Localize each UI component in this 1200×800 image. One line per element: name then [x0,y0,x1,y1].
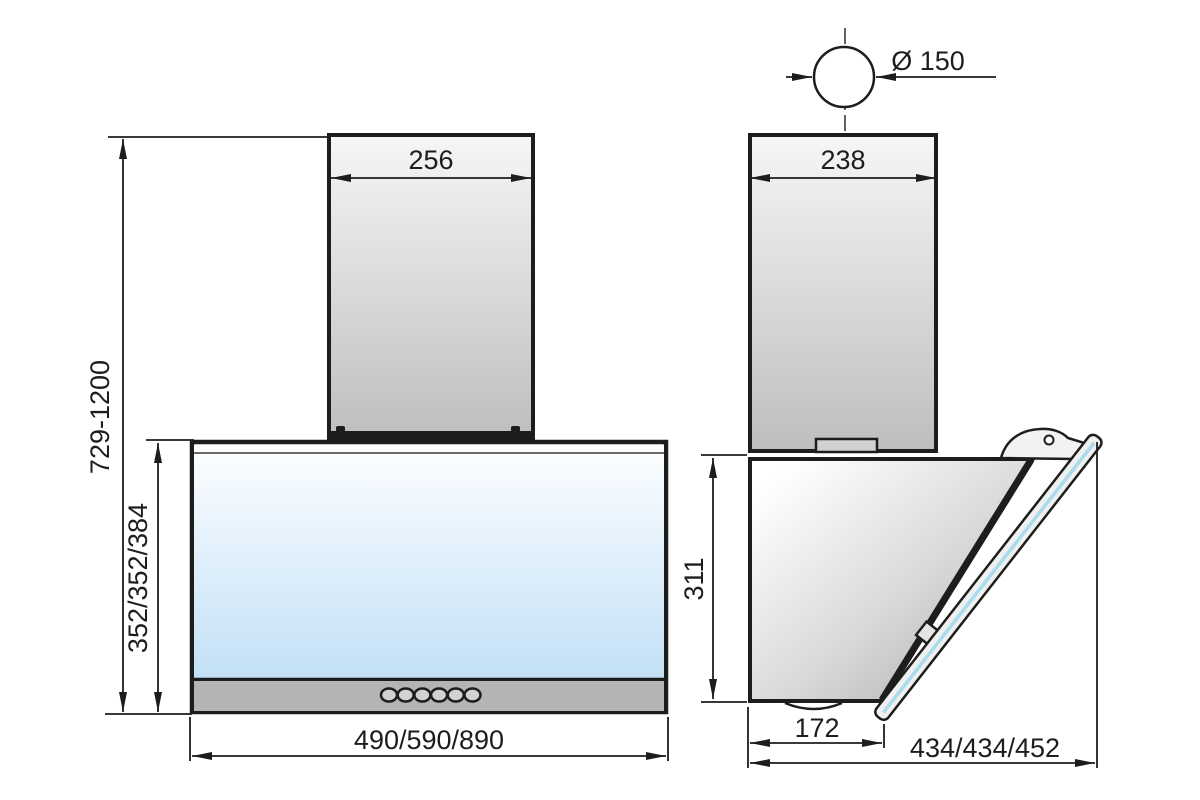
side-chimney-connector [816,439,877,452]
hinge-pivot-hole [1045,436,1054,445]
range-hood-dimension-drawing: 256 729-1200 352/352/384 490/590/890 [0,0,1200,800]
control-button [431,689,447,702]
front-chimney-width-label: 256 [408,145,453,175]
front-chimney [329,135,533,438]
side-body-height-label: 311 [679,557,709,600]
duct-outlet-circle [814,47,874,107]
control-button [398,689,414,702]
chimney-screw-left [336,426,345,432]
side-bottom-depth-label: 172 [794,713,839,743]
front-glass-panel [194,445,664,678]
control-button [448,689,464,702]
control-button [465,689,481,702]
front-total-height-label: 729-1200 [85,360,115,474]
front-chimney-bottom-band [330,431,532,439]
duct-diameter-label: Ø 150 [891,46,965,76]
side-chimney [750,135,936,451]
side-chimney-depth-label: 238 [820,145,865,175]
front-body-height-label: 352/352/384 [123,503,153,653]
front-body-width-label: 490/590/890 [354,725,504,755]
chimney-screw-right [511,426,520,432]
control-button [381,689,397,702]
control-button [414,689,430,702]
side-total-depth-label: 434/434/452 [910,733,1060,763]
drawing-svg: 256 729-1200 352/352/384 490/590/890 [0,0,1200,800]
